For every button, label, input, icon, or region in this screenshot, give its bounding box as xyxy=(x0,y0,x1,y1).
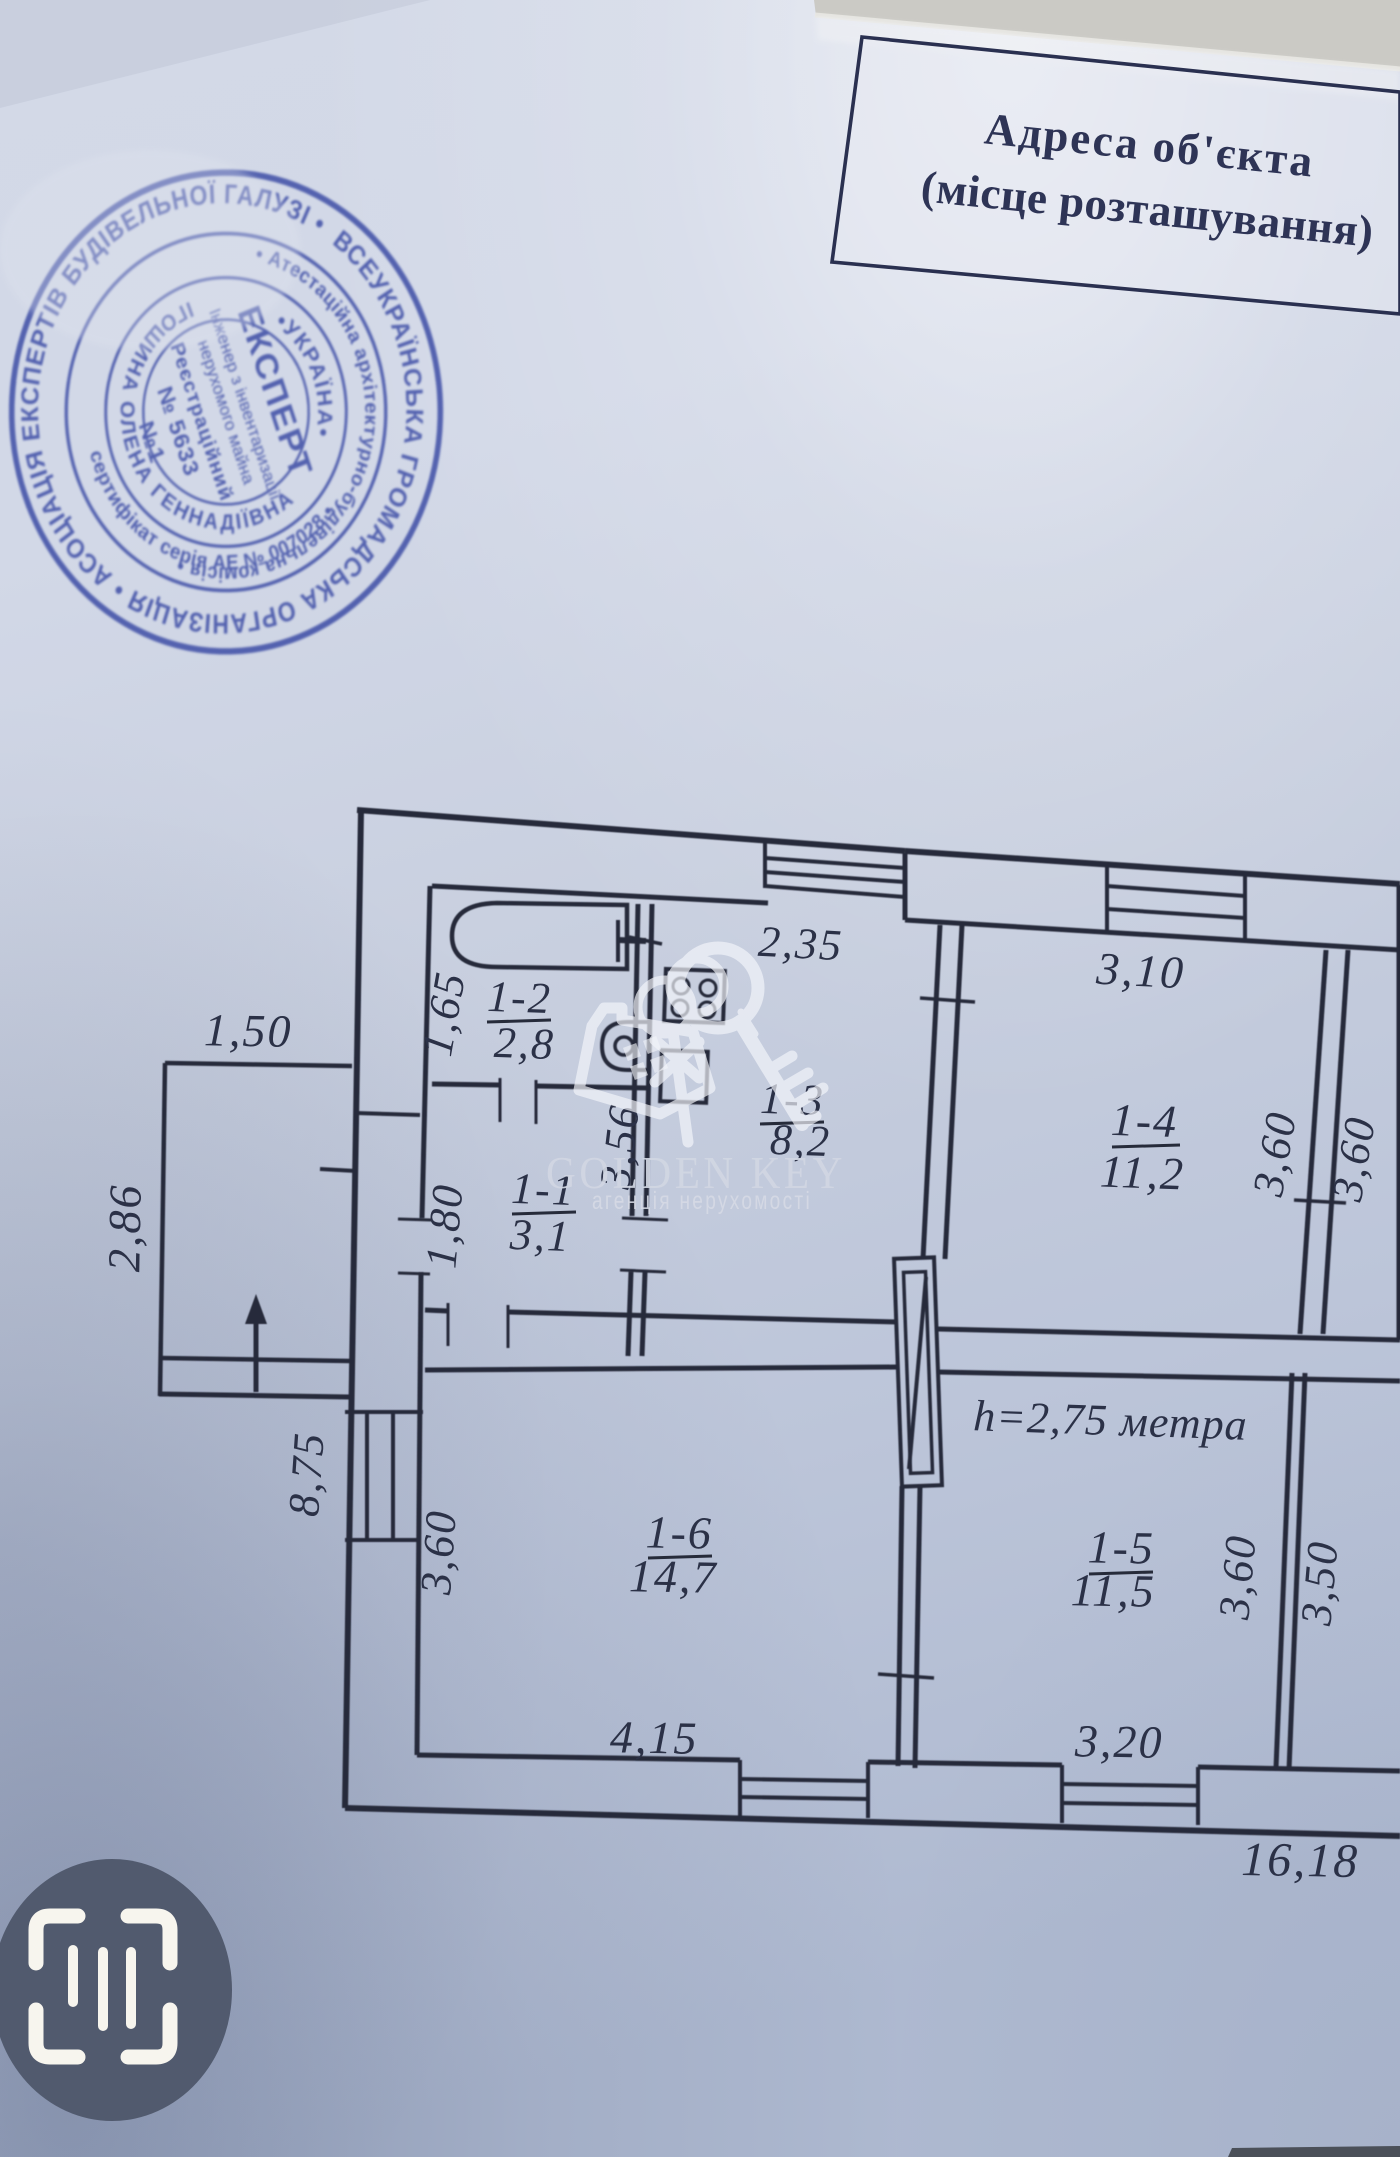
svg-text:11,2: 11,2 xyxy=(1099,1146,1186,1200)
svg-text:агенція нерухомості: агенція нерухомості xyxy=(592,1187,812,1215)
svg-text:3,20: 3,20 xyxy=(1074,1715,1164,1768)
svg-text:h=2,75 метра: h=2,75 метра xyxy=(972,1391,1248,1450)
svg-text:1-2: 1-2 xyxy=(486,972,552,1023)
svg-text:11,5: 11,5 xyxy=(1070,1564,1156,1616)
svg-text:2,8: 2,8 xyxy=(493,1018,556,1069)
svg-text:3,1: 3,1 xyxy=(508,1210,572,1261)
svg-text:1,80: 1,80 xyxy=(416,1181,472,1270)
svg-text:3,60: 3,60 xyxy=(411,1508,466,1597)
svg-text:8,75: 8,75 xyxy=(279,1430,334,1518)
svg-text:16,18: 16,18 xyxy=(1241,1833,1360,1888)
svg-text:3,50: 3,50 xyxy=(1291,1538,1347,1628)
svg-text:1,50: 1,50 xyxy=(204,1004,293,1057)
svg-text:2,86: 2,86 xyxy=(98,1183,151,1272)
svg-text:3,10: 3,10 xyxy=(1094,943,1186,999)
svg-text:14,7: 14,7 xyxy=(629,1550,718,1603)
svg-text:1-4: 1-4 xyxy=(1110,1094,1179,1147)
svg-text:2,35: 2,35 xyxy=(757,917,844,970)
svg-text:4,15: 4,15 xyxy=(610,1711,699,1764)
svg-text:3,60: 3,60 xyxy=(1209,1532,1265,1622)
